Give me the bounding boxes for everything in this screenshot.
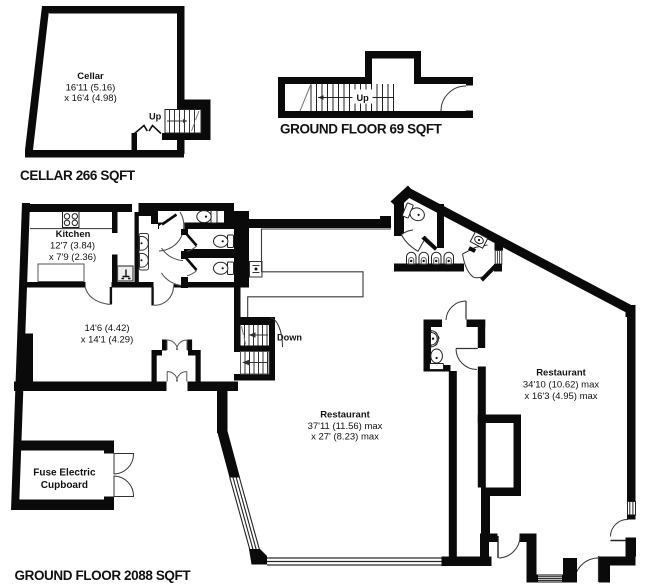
svg-text:x 27' (8.23) max: x 27' (8.23) max: [311, 431, 379, 442]
svg-text:34'10 (10.62) max: 34'10 (10.62) max: [523, 379, 600, 390]
svg-text:12'7 (3.84): 12'7 (3.84): [50, 241, 95, 252]
svg-text:x 16'3 (4.95) max: x 16'3 (4.95) max: [524, 391, 597, 402]
svg-text:Restaurant: Restaurant: [536, 367, 586, 378]
svg-text:Up: Up: [149, 112, 162, 122]
svg-text:CELLAR 266 SQFT: CELLAR 266 SQFT: [20, 168, 136, 183]
svg-text:Up: Up: [357, 93, 370, 103]
svg-text:x 7'9 (2.36): x 7'9 (2.36): [49, 252, 96, 263]
svg-text:Cupboard: Cupboard: [41, 480, 88, 491]
svg-text:Restaurant: Restaurant: [320, 409, 370, 420]
svg-text:16'11 (5.16): 16'11 (5.16): [66, 82, 116, 93]
svg-text:Cellar: Cellar: [77, 71, 104, 82]
svg-text:GROUND FLOOR 2088 SQFT: GROUND FLOOR 2088 SQFT: [15, 568, 192, 583]
svg-text:Fuse Electric: Fuse Electric: [33, 468, 96, 479]
svg-text:14'6 (4.42): 14'6 (4.42): [84, 323, 129, 334]
svg-text:x 14'1 (4.29): x 14'1 (4.29): [81, 335, 134, 346]
svg-text:x 16'4 (4.98): x 16'4 (4.98): [64, 93, 117, 104]
svg-text:GROUND FLOOR 69 SQFT: GROUND FLOOR 69 SQFT: [280, 121, 443, 136]
svg-text:Kitchen: Kitchen: [56, 229, 91, 240]
svg-text:37'11 (11.56) max: 37'11 (11.56) max: [308, 421, 383, 432]
